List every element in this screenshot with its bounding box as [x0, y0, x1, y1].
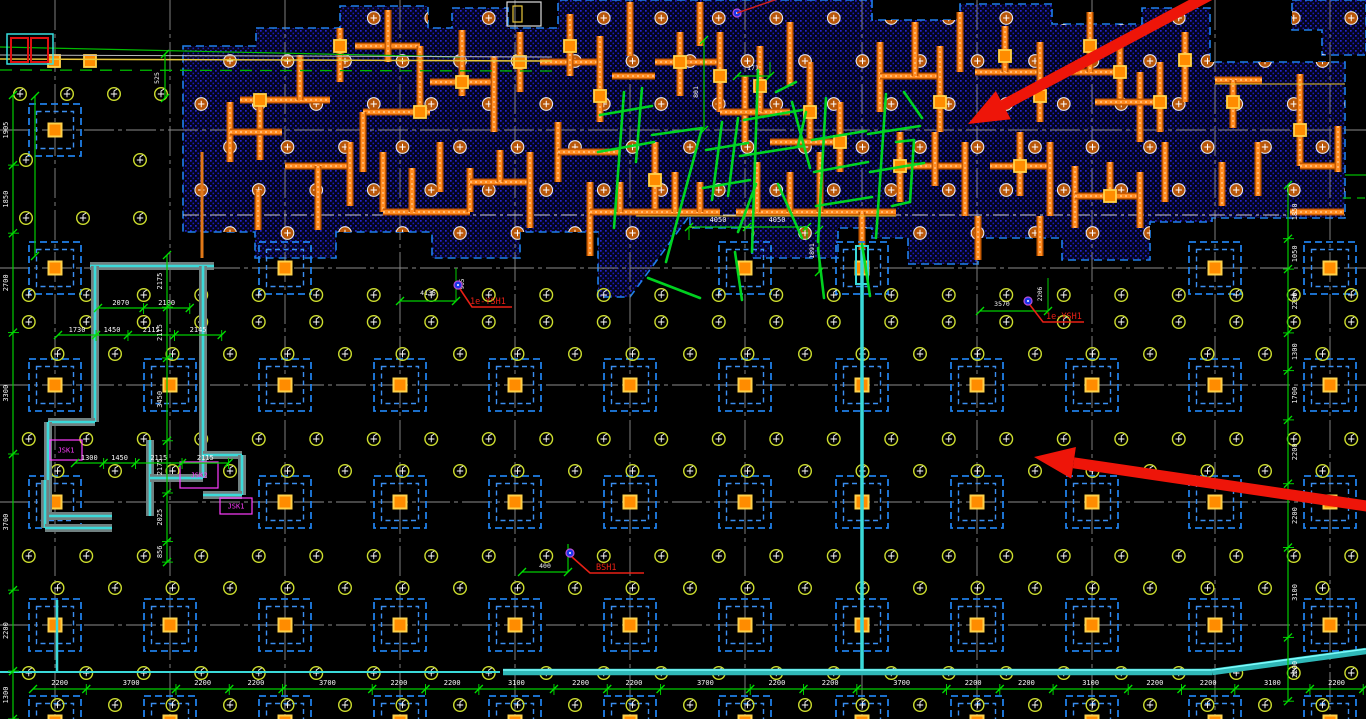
svg-text:1e-YSH1: 1e-YSH1 [470, 297, 506, 307]
svg-text:801: 801 [692, 86, 700, 98]
svg-text:2175: 2175 [156, 273, 164, 290]
column-marker [1114, 66, 1126, 78]
column-marker [1227, 96, 1239, 108]
pile-symbol [770, 98, 783, 111]
svg-text:2200: 2200 [822, 679, 839, 687]
column-marker [456, 76, 468, 88]
svg-text:3700: 3700 [697, 679, 714, 687]
svg-text:4050: 4050 [769, 216, 786, 224]
svg-text:2200: 2200 [572, 679, 589, 687]
column-marker [754, 80, 766, 92]
column-marker [1154, 96, 1166, 108]
column-marker [514, 56, 526, 68]
svg-text:2200: 2200 [1328, 679, 1345, 687]
column-marker [564, 40, 576, 52]
pile-symbol [1086, 227, 1099, 240]
column-marker [594, 90, 606, 102]
pile-symbol [914, 227, 927, 240]
pile-symbol [655, 98, 668, 111]
pile-symbol [827, 184, 840, 197]
column-marker [934, 96, 946, 108]
pile-symbol [367, 98, 380, 111]
pile-symbol [856, 55, 869, 68]
svg-text:2175: 2175 [156, 458, 164, 475]
pile-symbol [511, 141, 524, 154]
svg-text:2200: 2200 [247, 679, 264, 687]
svg-text:1891: 1891 [808, 243, 816, 259]
svg-text:2200: 2200 [625, 679, 642, 687]
pile-symbol [482, 12, 495, 25]
svg-text:2200: 2200 [194, 679, 211, 687]
svg-text:1300: 1300 [1291, 343, 1299, 360]
svg-text:2700: 2700 [2, 274, 10, 291]
column-marker [1104, 190, 1116, 202]
svg-text:2200: 2200 [444, 679, 461, 687]
column-marker [1014, 160, 1026, 172]
svg-text:400: 400 [539, 562, 551, 570]
svg-text:3570: 3570 [994, 300, 1010, 308]
svg-text:2200: 2200 [965, 679, 982, 687]
svg-text:1300: 1300 [2, 687, 10, 704]
pile-symbol [367, 12, 380, 25]
pile-symbol [770, 12, 783, 25]
svg-text:525: 525 [153, 72, 161, 84]
pile-symbol [224, 55, 237, 68]
svg-text:2200: 2200 [390, 679, 407, 687]
pile-symbol [942, 184, 955, 197]
pile-symbol [1144, 141, 1157, 154]
svg-text:JSK2: JSK2 [191, 472, 208, 480]
pile-symbol [626, 55, 639, 68]
column-marker [254, 94, 266, 106]
column-marker [999, 50, 1011, 62]
svg-text:4136: 4136 [420, 289, 436, 297]
column-marker [1084, 40, 1096, 52]
svg-text:2200: 2200 [768, 679, 785, 687]
pile-symbol [1029, 141, 1042, 154]
cad-drawing-canvas[interactable]: JSK1JSK2JSK12200370022002200370022002200… [0, 0, 1366, 719]
svg-text:2070: 2070 [112, 299, 129, 307]
svg-text:1850: 1850 [1291, 203, 1299, 220]
pile-symbol [1144, 55, 1157, 68]
svg-text:2145: 2145 [190, 326, 207, 334]
svg-text:1700: 1700 [1291, 387, 1299, 404]
pile-symbol [1000, 12, 1013, 25]
pile-symbol [367, 184, 380, 197]
pile-symbol [712, 12, 725, 25]
svg-text:2200: 2200 [1146, 679, 1163, 687]
pile-symbol [281, 141, 294, 154]
svg-text:2200: 2200 [1291, 507, 1299, 524]
pile-symbol [454, 227, 467, 240]
pile-symbol [1345, 12, 1358, 25]
pile-symbol [425, 184, 438, 197]
pile-symbol [540, 184, 553, 197]
svg-text:3100: 3100 [1291, 584, 1299, 601]
pile-symbol [914, 141, 927, 154]
pile-symbol [195, 98, 208, 111]
pile-symbol [281, 55, 294, 68]
svg-text:3100: 3100 [508, 679, 525, 687]
pile-symbol [1086, 141, 1099, 154]
svg-text:1300: 1300 [81, 454, 98, 462]
pile-symbol [1057, 98, 1070, 111]
column-marker [334, 40, 346, 52]
pile-symbol [1316, 141, 1329, 154]
pile-symbol [1287, 184, 1300, 197]
svg-text:2200: 2200 [1291, 293, 1299, 310]
pile-symbol [281, 227, 294, 240]
pile-symbol [597, 184, 610, 197]
pile-symbol [1000, 184, 1013, 197]
column-marker [649, 174, 661, 186]
cad-viewport[interactable]: JSK1JSK2JSK12200370022002200370022002200… [0, 0, 1366, 719]
svg-text:1e-YSH1: 1e-YSH1 [1046, 312, 1082, 322]
svg-text:1050: 1050 [1291, 245, 1299, 262]
pile-symbol [1201, 141, 1214, 154]
svg-text:2200: 2200 [1200, 679, 1217, 687]
pile-symbol [597, 12, 610, 25]
svg-text:1730: 1730 [69, 326, 86, 334]
pile-symbol [1230, 184, 1243, 197]
svg-text:3300: 3300 [2, 385, 10, 402]
svg-text:2200: 2200 [1018, 679, 1035, 687]
pile-symbol [971, 141, 984, 154]
svg-text:2115: 2115 [156, 324, 164, 341]
column-marker [1179, 54, 1191, 66]
svg-text:2200: 2200 [51, 679, 68, 687]
pile-symbol [1057, 184, 1070, 197]
svg-text:1450: 1450 [111, 454, 128, 462]
svg-text:2200: 2200 [1291, 443, 1299, 460]
column-marker [414, 106, 426, 118]
column-marker [714, 70, 726, 82]
svg-text:4050: 4050 [710, 216, 727, 224]
pile-symbol [454, 141, 467, 154]
column-marker [834, 136, 846, 148]
pile-symbol [1172, 184, 1185, 197]
pile-symbol [885, 184, 898, 197]
svg-text:3450: 3450 [156, 391, 164, 408]
svg-text:3100: 3100 [1264, 679, 1281, 687]
column-marker [674, 56, 686, 68]
pile-symbol [827, 12, 840, 25]
pile-symbol [626, 227, 639, 240]
column-marker [48, 55, 60, 67]
svg-text:3700: 3700 [123, 679, 140, 687]
svg-text:2206: 2206 [1037, 286, 1044, 301]
svg-text:3700: 3700 [893, 679, 910, 687]
pile-symbol [971, 55, 984, 68]
column-marker [84, 55, 96, 67]
column-marker [1294, 124, 1306, 136]
pile-symbol [396, 141, 409, 154]
svg-text:2025: 2025 [156, 509, 164, 526]
svg-text:3700: 3700 [2, 514, 10, 531]
svg-text:JSK1: JSK1 [228, 503, 245, 511]
svg-text:856: 856 [156, 546, 164, 559]
pile-symbol [540, 98, 553, 111]
svg-text:2115: 2115 [197, 454, 214, 462]
pile-symbol [655, 12, 668, 25]
svg-text:1450: 1450 [104, 326, 121, 334]
svg-text:3700: 3700 [319, 679, 336, 687]
svg-text:2200: 2200 [1291, 661, 1299, 678]
svg-text:2200: 2200 [2, 622, 10, 639]
pile-symbol [482, 184, 495, 197]
svg-text:3100: 3100 [1082, 679, 1099, 687]
pile-symbol [856, 141, 869, 154]
svg-text:1905: 1905 [2, 122, 10, 139]
svg-text:1850: 1850 [2, 191, 10, 208]
svg-text:BSH1: BSH1 [596, 563, 616, 573]
svg-text:JSK1: JSK1 [58, 447, 75, 455]
